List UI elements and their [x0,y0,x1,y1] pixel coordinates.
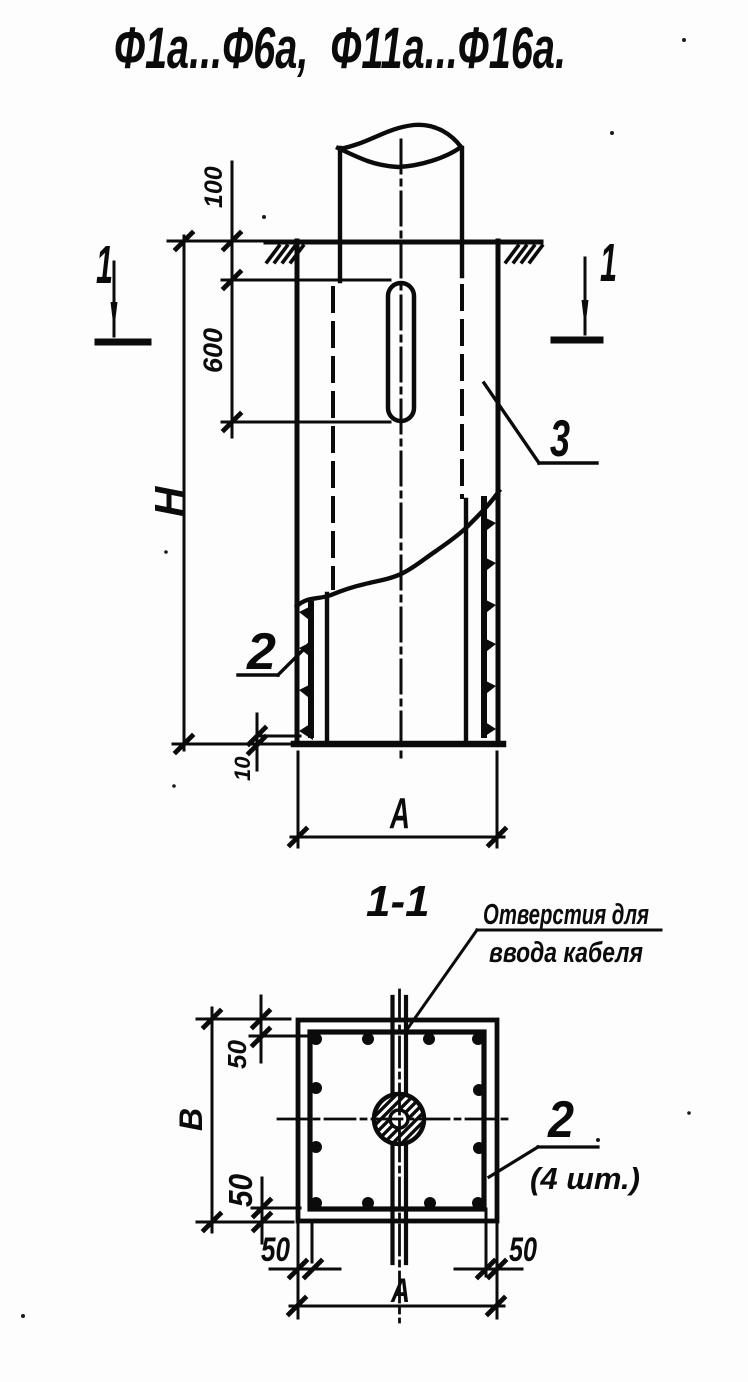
svg-text:1-1: 1-1 [366,877,430,926]
svg-text:50: 50 [222,1040,252,1069]
svg-text:50: 50 [222,1173,259,1207]
svg-text:(4 шт.): (4 шт.) [530,1161,640,1196]
svg-text:А: А [390,1272,410,1310]
svg-text:Н: Н [146,485,193,517]
svg-text:100: 100 [200,166,228,208]
svg-text:2: 2 [547,1091,574,1149]
svg-text:А: А [389,789,410,838]
svg-text:Ф1а...Ф6а, Ф11а...Ф16а.: Ф1а...Ф6а, Ф11а...Ф16а. [114,16,566,81]
svg-text:В: В [173,1108,209,1131]
svg-text:3: 3 [550,410,570,468]
svg-text:600: 600 [198,328,228,373]
svg-text:10: 10 [230,756,255,781]
svg-text:1: 1 [600,233,617,293]
svg-text:50: 50 [261,1231,290,1269]
svg-text:50: 50 [509,1231,537,1269]
svg-text:2: 2 [246,623,276,681]
svg-text:ввода кабеля: ввода кабеля [489,937,643,969]
svg-text:Отверстия для: Отверстия для [483,899,649,931]
svg-text:1: 1 [96,235,113,295]
